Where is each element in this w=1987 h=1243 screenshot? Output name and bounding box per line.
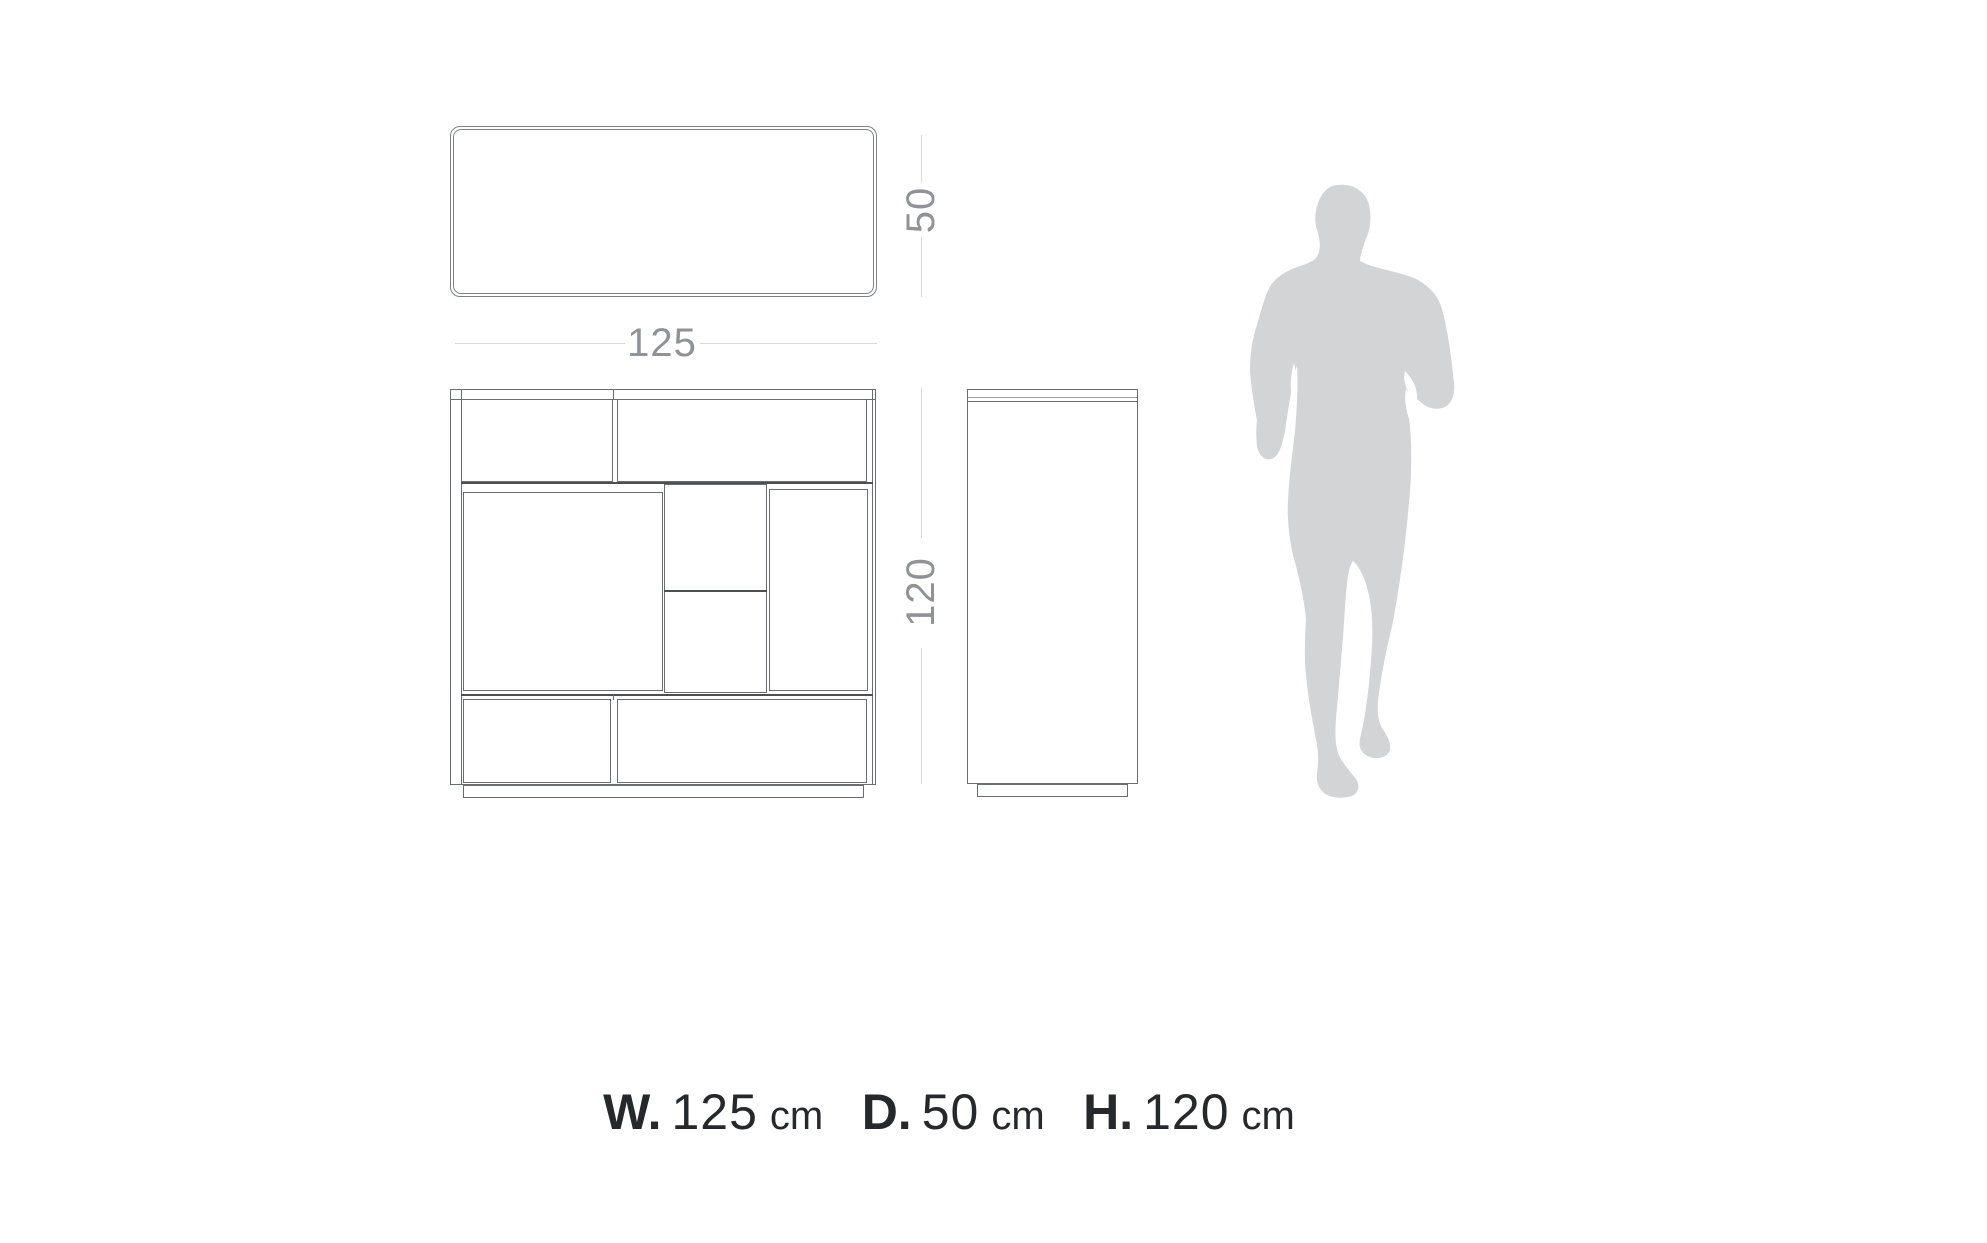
width-spec-value: 125 (671, 1084, 757, 1140)
depth-spec: D.50cm (862, 1085, 1045, 1152)
width-dimension-line-left (455, 343, 625, 344)
height-spec-unit: cm (1242, 1094, 1295, 1138)
height-dimension-line-upper (921, 388, 922, 538)
front-top-seam (613, 390, 614, 399)
front-right-side-panel-line (872, 390, 873, 784)
height-dimension-line-lower (921, 648, 922, 784)
front-view-outline (450, 389, 876, 785)
top-view-outline (450, 126, 877, 297)
front-right-door (769, 489, 868, 691)
width-spec-label: W. (603, 1084, 661, 1140)
front-top-right-panel (617, 399, 867, 482)
height-dimension-label: 120 (901, 532, 941, 652)
depth-spec-label: D. (862, 1084, 912, 1140)
width-dimension-line-right (700, 343, 877, 344)
width-dimension-label: 125 (602, 323, 722, 363)
front-bottom-right-drawer (617, 699, 867, 783)
width-spec: W.125cm (603, 1085, 823, 1152)
depth-dimension-label: 50 (901, 150, 941, 270)
front-plinth (463, 785, 864, 798)
person-silhouette (1246, 183, 1458, 799)
depth-spec-unit: cm (991, 1094, 1044, 1138)
width-spec-unit: cm (770, 1094, 823, 1138)
front-open-niche-upper (664, 484, 767, 591)
front-bottom-left-drawer (463, 699, 611, 783)
side-plinth (977, 784, 1128, 797)
depth-spec-value: 50 (922, 1084, 980, 1140)
front-niche-shelf-line (664, 590, 767, 592)
side-top-panel-line-2 (968, 401, 1137, 402)
furniture-dimension-diagram: 50 125 120 (0, 0, 1987, 1243)
front-lower-shelf-line (461, 694, 873, 696)
height-spec-value: 120 (1143, 1084, 1229, 1140)
dimensions-caption: W.125cm D.50cm H.120cm (429, 1085, 1469, 1152)
front-top-left-panel (461, 399, 613, 482)
front-left-door (463, 492, 663, 691)
side-view-outline (967, 389, 1138, 784)
side-top-panel-line-1 (968, 397, 1137, 398)
height-spec: H.120cm (1083, 1085, 1295, 1152)
front-bottom-seam (613, 694, 614, 700)
height-spec-label: H. (1083, 1084, 1133, 1140)
top-view-inner-line (453, 129, 874, 294)
front-open-niche-lower (664, 591, 767, 693)
